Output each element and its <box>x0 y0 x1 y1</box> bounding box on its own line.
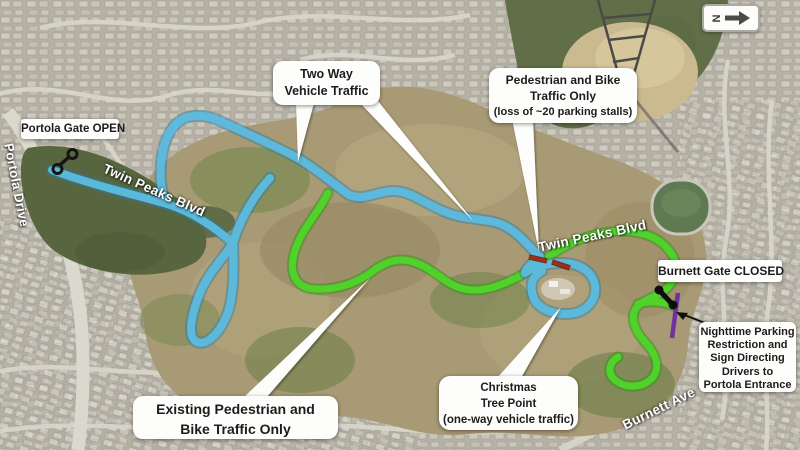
burnett-gate-label: Burnett Gate CLOSED <box>658 264 784 278</box>
callout-nighttime-parking-restriction: Nighttime Parking Restriction and Sign D… <box>699 322 796 392</box>
callout-pedestrian-bike-only: Pedestrian and Bike Traffic Only (loss o… <box>489 68 637 123</box>
existing-line1: Existing Pedestrian and <box>133 399 338 419</box>
ped-bike-line3: (loss of ~20 parking stalls) <box>489 104 637 120</box>
callout-christmas-tree-point: Christmas Tree Point (one-way vehicle tr… <box>439 376 578 430</box>
existing-line2: Bike Traffic Only <box>133 419 338 439</box>
reservoir-water <box>661 189 701 217</box>
north-arrow-icon <box>725 10 751 26</box>
nighttime-line2: Restriction and <box>699 339 796 352</box>
callout-existing-ped-bike: Existing Pedestrian and Bike Traffic Onl… <box>133 396 338 439</box>
callout-two-way-vehicle-traffic: Two Way Vehicle Traffic <box>273 61 380 105</box>
callout-portola-gate-open: Portola Gate OPEN <box>21 119 119 139</box>
two-way-line2: Vehicle Traffic <box>273 83 380 100</box>
north-arrow: N <box>702 4 760 32</box>
tree-clump <box>75 232 165 272</box>
north-letter: N <box>709 14 720 22</box>
nighttime-line4: Drivers to <box>699 366 796 379</box>
christmas-line2: Tree Point <box>439 396 578 412</box>
callout-burnett-gate-closed: Burnett Gate CLOSED <box>658 260 782 282</box>
aerial-imagery <box>0 0 800 450</box>
christmas-line3: (one-way vehicle traffic) <box>439 412 578 428</box>
portola-gate-label: Portola Gate OPEN <box>21 123 125 135</box>
nighttime-line5: Portola Entrance <box>699 379 796 392</box>
twin-peaks-traffic-map: Portola Drive Twin Peaks Blvd Twin Peaks… <box>0 0 800 450</box>
ped-bike-line2: Traffic Only <box>489 88 637 104</box>
ctp-building <box>549 281 558 287</box>
aerial-map-canvas <box>0 0 800 450</box>
ctp-building <box>560 289 570 294</box>
two-way-line1: Two Way <box>273 66 380 83</box>
nighttime-line3: Sign Directing <box>699 352 796 365</box>
nighttime-line1: Nighttime Parking <box>699 326 796 339</box>
ped-bike-line1: Pedestrian and Bike <box>489 72 637 88</box>
christmas-line1: Christmas <box>439 380 578 396</box>
